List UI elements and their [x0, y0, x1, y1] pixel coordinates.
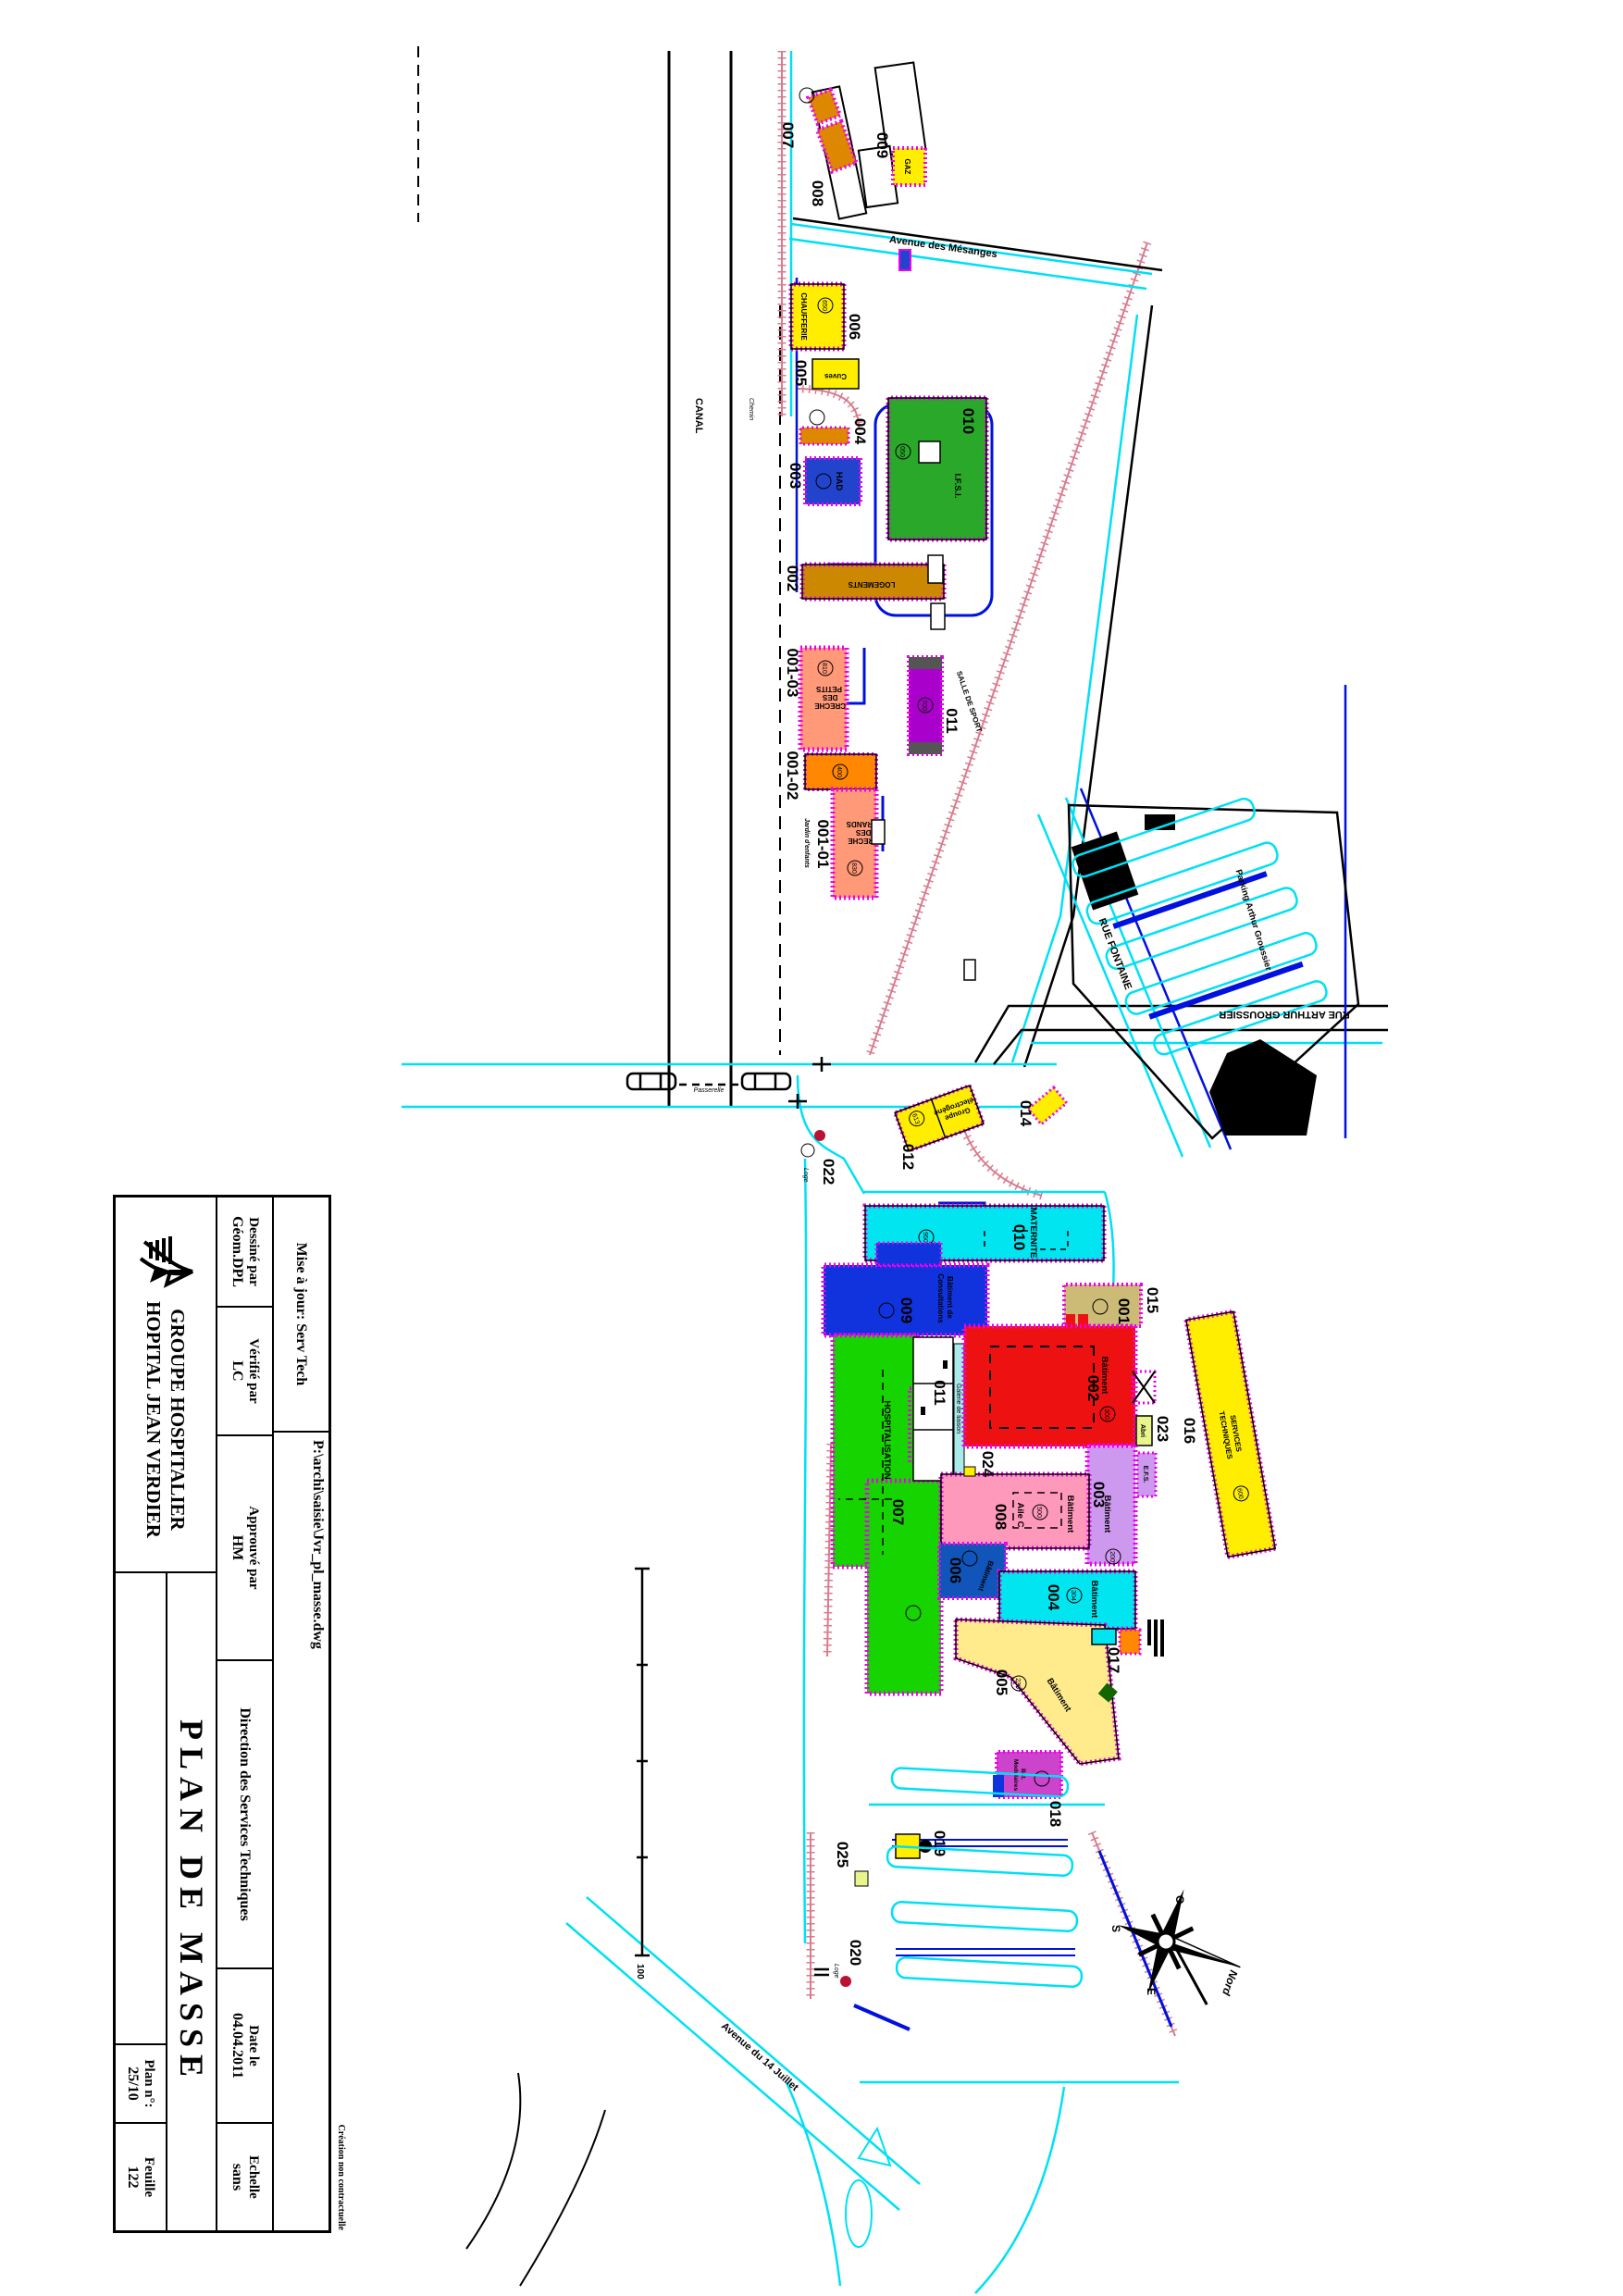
cell-file-path: P:\archi\saisie\Jvr_pl_masse.dwg	[274, 1431, 328, 2230]
ref-810: 810	[821, 663, 827, 674]
cell-title: PLAN DE MASSE	[167, 1571, 217, 2230]
plan-value: 25/10	[125, 2066, 142, 2100]
ref-500: 500	[1035, 1507, 1042, 1518]
main-campus: 022 Loge Groupe électrogène 613 012 014 …	[788, 1057, 1275, 1987]
echelle-label: Echelle	[245, 2155, 261, 2199]
svg-text:HOSPITALISATION: HOSPITALISATION	[882, 1400, 892, 1479]
label-014: 014	[1017, 1100, 1035, 1127]
scale-100: 100	[635, 1964, 645, 1980]
direction: Direction des Services Techniques	[237, 1707, 254, 1920]
label-001-01: 001-01	[814, 820, 832, 869]
ref-830: 830	[850, 863, 857, 874]
ref-200: 200	[1109, 1551, 1115, 1562]
ref-400: 400	[836, 766, 842, 777]
cuves-label: Cuves	[824, 372, 847, 380]
jardin-label: Jardin d'enfants	[803, 818, 810, 868]
plan-de-masse-sheet: CANAL Chemin	[0, 0, 1623, 2296]
label-023: 023	[1154, 1416, 1171, 1442]
cell-echelle: Echelle sans	[217, 2122, 274, 2230]
ifsi-label: I.F.S.I.	[952, 474, 962, 499]
dot-020	[840, 1976, 851, 1987]
label-022: 022	[820, 1159, 837, 1185]
verifie-label: Vérifié par	[245, 1338, 261, 1403]
cell-dessine: Dessiné par Géom.DPL	[217, 1198, 274, 1306]
title-block: Mise à jour: Serv Tech P:\archi\saisie\J…	[113, 1195, 331, 2233]
label-002n: 002	[784, 565, 801, 591]
batiment-008-label: Bâtiment	[1065, 1496, 1075, 1533]
label-010m: 010	[1010, 1224, 1028, 1250]
efs-label: E.F.S.	[1142, 1466, 1148, 1483]
service-boxes	[872, 555, 975, 980]
compass-nord: Nord	[1220, 1968, 1241, 1998]
dessine-value: Géom.DPL	[229, 1216, 245, 1287]
date-label: Date le	[245, 2025, 261, 2066]
compass-s: S	[1109, 1925, 1122, 1932]
plan-label: Plan n°:	[142, 2059, 157, 2107]
org-line1: GROUPE HOSPITALIER	[166, 1301, 190, 1538]
services-techniques: SERVICES TECHNIQUES 600	[1186, 1311, 1275, 1557]
compass-o: O	[1173, 1895, 1186, 1904]
hospital-logo	[133, 1231, 198, 1288]
label-011c: 011	[931, 1380, 948, 1405]
verifie-value: LC	[229, 1360, 245, 1381]
label-012: 012	[899, 1144, 917, 1170]
building-004n	[800, 428, 849, 444]
passerelle-label: Passerelle	[694, 1087, 725, 1094]
date-value: 04.04.2011	[229, 2013, 245, 2079]
ref-950: 950	[922, 1232, 928, 1243]
logements-002-label: LOGEMENTS	[848, 580, 895, 589]
loge-022: Loge	[802, 1168, 809, 1183]
label-008: 008	[809, 180, 826, 206]
approuve-label: Approuvé par	[245, 1506, 261, 1589]
cell-feuille: Feuille 122	[116, 2122, 167, 2230]
scale-bar: 100	[635, 1569, 650, 1980]
maternite-label: MATERNITE	[1028, 1208, 1038, 1259]
ref-650: 650	[821, 300, 827, 311]
label-016: 016	[1181, 1418, 1198, 1444]
chaufferie-label: CHAUFFERIE	[799, 292, 808, 341]
ref-050: 050	[898, 446, 905, 457]
aile-c-label: Aile C	[1015, 1503, 1025, 1528]
building-011c	[913, 1337, 953, 1481]
label-006b: 006	[947, 1558, 964, 1583]
cell-empty	[116, 1571, 167, 2043]
landscape-drawing: CANAL Chemin	[0, 0, 1623, 2296]
label-003: 003	[787, 463, 804, 489]
consultations-label: Bâtiment de Consultations	[936, 1273, 954, 1323]
label-009m: 009	[898, 1297, 915, 1323]
ref-230: 230	[1014, 1678, 1021, 1689]
bridge-area: Passerelle	[627, 1074, 790, 1094]
compass-e: E	[1145, 1988, 1158, 1995]
label-003l: 003	[1090, 1482, 1108, 1508]
label-019: 019	[931, 1831, 948, 1856]
cell-approuve: Approuvé par HM	[217, 1434, 274, 1659]
batiment-004-label: Bâtiment	[1089, 1581, 1099, 1619]
dessine-label: Dessiné par	[245, 1217, 261, 1286]
feuille-value: 122	[125, 2166, 142, 2189]
disclaimer: Création non contractuelle	[336, 2071, 346, 2230]
label-008p: 008	[992, 1504, 1010, 1530]
label-004c: 004	[1045, 1584, 1062, 1611]
cell-org: GROUPE HOSPITALIER HOPITAL JEAN VERDIER	[116, 1198, 217, 1571]
label-017: 017	[1105, 1647, 1122, 1673]
label-025: 025	[834, 1842, 851, 1868]
mise-a-jour: Mise à jour: Serv Tech	[293, 1243, 310, 1386]
cell-date: Date le 04.04.2011	[217, 1967, 274, 2122]
label-015: 015	[1144, 1287, 1161, 1313]
echelle-value: sans	[229, 2164, 245, 2191]
label-007: 007	[779, 122, 797, 148]
ref-700: 700	[921, 700, 927, 711]
label-001-02: 001-02	[784, 751, 801, 800]
av14-label: Avenue du 14 Juillet	[719, 2020, 800, 2093]
cell-verifie: Vérifié par LC	[217, 1306, 274, 1434]
label-001: 001	[1115, 1298, 1133, 1324]
label-024: 024	[979, 1451, 997, 1478]
cell-mise-a-jour: Mise à jour: Serv Tech	[274, 1198, 328, 1431]
label-005: 005	[792, 360, 810, 386]
ref-300: 300	[1103, 1409, 1109, 1420]
canal-label: CANAL	[693, 398, 704, 434]
label-004: 004	[851, 418, 869, 445]
chemin-label: Chemin	[748, 398, 754, 420]
file-path: P:\archi\saisie\Jvr_pl_masse.dwg	[309, 1440, 326, 1649]
label-009: 009	[873, 132, 891, 158]
approuve-value: HM	[229, 1535, 245, 1561]
cell-direction: Direction des Services Techniques	[217, 1659, 274, 1967]
label-001-03: 001-03	[784, 649, 801, 698]
groussier-label: RUE ARTHUR GROUSSIER	[1219, 1009, 1349, 1020]
svg-text:007: 007	[889, 1499, 907, 1525]
road-network	[402, 51, 1388, 2293]
drawing-title: PLAN DE MASSE	[172, 1719, 211, 2084]
label-020: 020	[847, 1940, 864, 1966]
label-005c: 005	[993, 1669, 1010, 1695]
had-label: HAD	[834, 472, 844, 491]
label-010: 010	[960, 408, 977, 434]
ref-304: 304	[1070, 1590, 1076, 1601]
label-002r: 002	[1084, 1375, 1102, 1401]
abri-label: Abri	[1139, 1424, 1146, 1437]
dot-022	[814, 1130, 825, 1141]
galerie-label: Galerie de liaison	[955, 1384, 961, 1433]
building-004c	[999, 1571, 1135, 1629]
cell-plan-no: Plan n°: 25/10	[116, 2043, 167, 2122]
compass-rose: Nord O S E	[1099, 1872, 1258, 2019]
org-line2: HOPITAL JEAN VERDIER	[142, 1301, 166, 1538]
gaz-label: GAZ	[903, 159, 911, 175]
label-006: 006	[846, 314, 863, 340]
label-011n: 011	[943, 708, 960, 733]
label-018: 018	[1047, 1801, 1064, 1827]
loge-020: Loge	[833, 1964, 839, 1979]
had-building	[805, 458, 861, 504]
feuille-label: Feuille	[142, 2157, 157, 2197]
